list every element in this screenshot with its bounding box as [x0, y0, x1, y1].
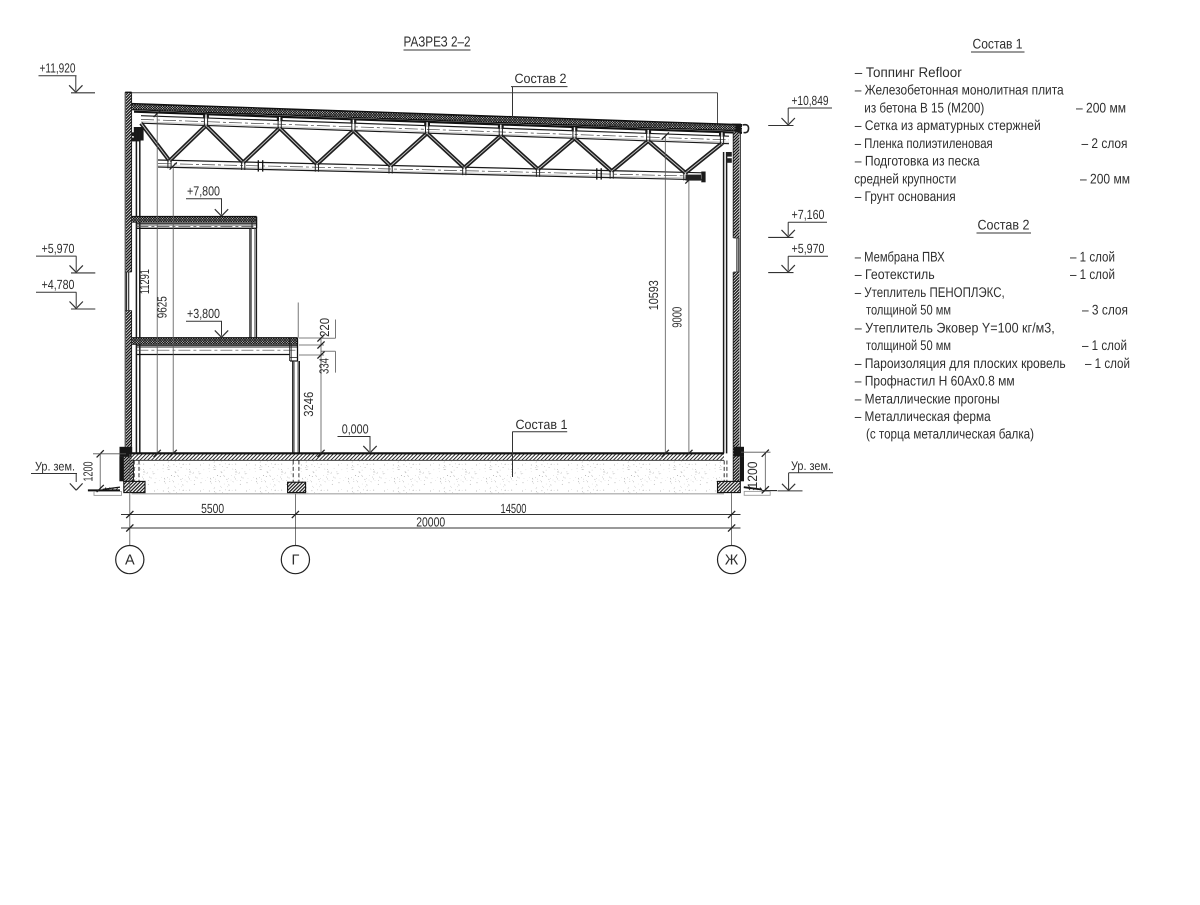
svg-text:средней крупности: средней крупности: [854, 170, 956, 186]
svg-text:– 1 слой: – 1 слой: [1082, 337, 1127, 353]
svg-text:– 2 слоя: – 2 слоя: [1082, 135, 1128, 151]
svg-text:11291: 11291: [137, 269, 152, 294]
svg-text:5500: 5500: [201, 501, 224, 516]
svg-text:РАЗРЕЗ 2–2: РАЗРЕЗ 2–2: [404, 34, 471, 50]
svg-text:Состав 1: Состав 1: [516, 417, 568, 432]
svg-text:из бетона В 15 (М200): из бетона В 15 (М200): [864, 99, 984, 115]
svg-text:– Мембрана ПВХ: – Мембрана ПВХ: [855, 249, 946, 265]
svg-text:+7,800: +7,800: [187, 184, 220, 199]
svg-text:– 3 слоя: – 3 слоя: [1082, 302, 1128, 318]
svg-text:– 200 мм: – 200 мм: [1080, 170, 1130, 186]
svg-text:20000: 20000: [416, 515, 445, 530]
svg-text:– 1 слой: – 1 слой: [1070, 266, 1115, 282]
svg-text:+5,970: +5,970: [792, 241, 825, 256]
svg-text:+5,970: +5,970: [42, 241, 75, 256]
svg-text:– Подготовка из песка: – Подготовка из песка: [855, 153, 980, 169]
svg-text:+3,800: +3,800: [187, 306, 220, 321]
svg-text:– Пароизоляция для плоских кр: – Пароизоляция для плоских кровель: [855, 355, 1066, 371]
svg-text:Г: Г: [291, 553, 299, 569]
svg-text:3246: 3246: [301, 392, 316, 417]
svg-text:– 200 мм: – 200 мм: [1076, 99, 1126, 115]
svg-text:– Пленка полиэтиленовая: – Пленка полиэтиленовая: [855, 135, 993, 151]
svg-text:– Профнастил Н 60Ах0.8 мм: – Профнастил Н 60Ах0.8 мм: [855, 373, 1015, 389]
svg-text:– Сетка из арматурных стержне: – Сетка из арматурных стержней: [855, 117, 1041, 133]
svg-text:– 1 слой: – 1 слой: [1070, 249, 1115, 265]
svg-text:толщиной 50 мм: толщиной 50 мм: [866, 302, 951, 318]
svg-text:220: 220: [317, 318, 332, 337]
svg-text:Ж: Ж: [725, 553, 739, 569]
svg-text:+7,160: +7,160: [792, 207, 825, 222]
svg-text:– Металлические прогоны: – Металлические прогоны: [855, 390, 1000, 406]
svg-text:9625: 9625: [154, 296, 169, 318]
svg-text:– Металлическая ферма: – Металлическая ферма: [855, 408, 991, 424]
svg-text:14500: 14500: [501, 501, 527, 516]
svg-text:Ур. зем.: Ур. зем.: [791, 459, 831, 473]
svg-text:– Геотекстиль: – Геотекстиль: [855, 266, 935, 282]
svg-text:1200: 1200: [80, 462, 95, 482]
svg-text:334: 334: [316, 358, 331, 374]
svg-text:0,000: 0,000: [342, 421, 369, 436]
svg-text:Состав 1: Состав 1: [973, 36, 1023, 52]
svg-text:– Грунт основания: – Грунт основания: [855, 188, 956, 204]
svg-text:1200: 1200: [745, 462, 760, 489]
svg-text:Состав 2: Состав 2: [515, 71, 567, 86]
svg-text:9000: 9000: [669, 307, 684, 328]
svg-text:10593: 10593: [646, 280, 661, 310]
svg-text:А: А: [125, 553, 135, 569]
svg-text:– Железобетонная монолитная: – Железобетонная монолитная плита: [855, 82, 1064, 98]
svg-text:Ур. зем.: Ур. зем.: [35, 460, 75, 474]
svg-text:+11,920: +11,920: [40, 61, 76, 76]
svg-text:толщиной 50 мм: толщиной 50 мм: [866, 337, 951, 353]
svg-text:– Утеплитель Эковер Y=100 кг/: – Утеплитель Эковер Y=100 кг/м3,: [855, 319, 1055, 335]
svg-text:+10,849: +10,849: [792, 93, 829, 108]
svg-text:Состав 2: Состав 2: [978, 217, 1030, 233]
svg-text:(с торца металлическая балка): (с торца металлическая балка): [866, 426, 1034, 442]
svg-text:+4,780: +4,780: [42, 277, 75, 292]
svg-text:– Утеплитель ПЕНОПЛЭКС,: – Утеплитель ПЕНОПЛЭКС,: [855, 284, 1005, 300]
svg-text:– 1 слой: – 1 слой: [1085, 355, 1130, 371]
svg-text:– Топпинг Refloor: – Топпинг Refloor: [855, 64, 962, 80]
